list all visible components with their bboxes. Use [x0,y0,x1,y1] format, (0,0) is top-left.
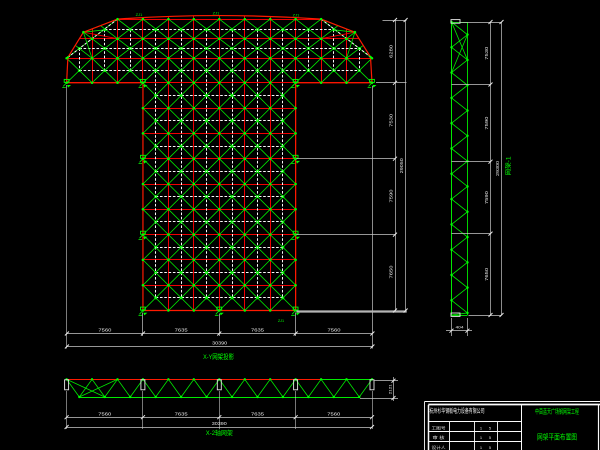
svg-text:设计人: 设计人 [432,444,446,450]
svg-text:7635: 7635 [175,328,189,333]
svg-text:7560: 7560 [327,411,341,416]
svg-text:7530: 7530 [484,46,489,60]
svg-text:7560: 7560 [328,328,342,333]
svg-text:7590: 7590 [484,190,489,204]
svg-text:7590: 7590 [389,189,394,203]
svg-text:7635: 7635 [175,411,189,416]
svg-text:X-Y网架投影: X-Y网架投影 [203,352,234,361]
svg-text:工图号: 工图号 [432,424,446,430]
svg-text:2121: 2121 [387,384,392,394]
svg-text:X-2轴网架: X-2轴网架 [206,428,234,437]
svg-text:ZJ1: ZJ1 [293,13,300,18]
svg-text:30390: 30390 [212,421,228,426]
svg-text:7560: 7560 [98,411,112,416]
svg-text:7560: 7560 [98,328,112,333]
svg-text:404: 404 [456,325,465,330]
svg-text:ZJ1: ZJ1 [213,11,220,16]
svg-text:29300: 29300 [495,160,500,176]
svg-text:30390: 30390 [212,341,228,346]
svg-text:网架平面布置图: 网架平面布置图 [537,432,577,441]
svg-text:7590: 7590 [484,116,489,130]
svg-text:7650: 7650 [484,267,489,281]
svg-text:7635: 7635 [251,328,265,333]
svg-text:中茵蓝天广场钢网架工程: 中茵蓝天广场钢网架工程 [535,407,579,416]
svg-text:审 核: 审 核 [433,434,445,440]
svg-text:ZJ1: ZJ1 [136,12,143,17]
svg-text:6280: 6280 [389,44,394,58]
svg-text:7635: 7635 [251,411,265,416]
svg-text:杭州杉华钢板电力设备有限公司: 杭州杉华钢板电力设备有限公司 [430,407,485,415]
svg-text:7650: 7650 [389,265,394,279]
svg-text:网架-1: 网架-1 [505,156,513,176]
svg-text:7530: 7530 [389,113,394,127]
svg-text:29050: 29050 [399,157,404,173]
svg-text:ZJ1: ZJ1 [278,319,284,323]
